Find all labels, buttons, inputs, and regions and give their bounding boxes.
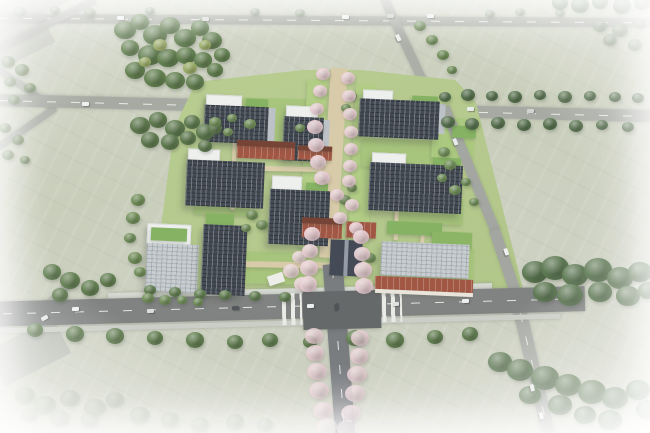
junction-box: [303, 290, 382, 330]
row-main-road-south: [66, 326, 84, 341]
row-main-road-south: [27, 323, 43, 337]
row-main-road-north: [81, 280, 99, 295]
cherry-axis-north: [343, 160, 357, 172]
forest-southeast-upper: [557, 284, 583, 306]
trees-site-interior: [444, 160, 456, 170]
car: [117, 16, 124, 20]
trees-west-edge: [2, 150, 14, 160]
row-north-road: [593, 20, 607, 32]
row-east-road-lower: [543, 118, 557, 130]
trees-faded-southwest: [161, 412, 179, 427]
trees-west-edge: [1, 56, 15, 68]
row-east-road-lower: [517, 119, 531, 131]
cherry-bottom-fade: [317, 418, 337, 433]
trees-west-edge: [15, 64, 29, 76]
trees-faded-southwest: [257, 418, 273, 432]
cherry-axis-north: [341, 72, 355, 84]
grove-west: [161, 134, 179, 149]
park-northwest: [144, 69, 166, 88]
forest-southeast-lower: [602, 387, 628, 409]
trees-site-interior: [414, 21, 426, 31]
row-east-road-upper: [486, 91, 498, 101]
row-main-road-north: [52, 288, 68, 302]
park-northwest: [121, 40, 139, 55]
cherry-gate-plaza: [283, 264, 299, 278]
forest-southeast-upper: [638, 282, 650, 299]
row-north-road: [14, 7, 26, 17]
row-east-road-lower: [622, 122, 634, 132]
trees-site-interior: [438, 147, 450, 157]
trees-west-edge: [4, 77, 16, 87]
trees-site-interior: [124, 233, 136, 243]
car: [387, 14, 394, 18]
trees-site-interior: [159, 295, 171, 305]
zebra-crossing: [382, 290, 403, 323]
cherry-axis-north: [345, 199, 359, 211]
park-accents: [199, 40, 211, 50]
cherry-axis-north: [310, 103, 324, 115]
trees-faded-southwest: [60, 390, 80, 407]
car: [391, 302, 398, 306]
row-main-road-south: [106, 328, 124, 343]
forest-southeast-upper: [616, 286, 640, 306]
cherry-axis-south: [354, 247, 370, 261]
grove-west: [149, 112, 167, 127]
cherry-below-crossing: [345, 385, 365, 402]
trees-site-interior: [209, 117, 221, 127]
forest-southeast-lower: [507, 359, 533, 381]
trees-faded-southwest: [50, 410, 70, 427]
park-northwest: [214, 48, 230, 62]
row-main-road-south: [462, 327, 478, 341]
car: [526, 109, 533, 113]
trees-site-interior: [131, 194, 145, 206]
cherry-below-crossing: [341, 405, 361, 422]
cherry-axis-north: [307, 120, 323, 134]
cherry-axis-north: [342, 175, 356, 187]
row-east-road-upper: [461, 89, 475, 101]
cherry-below-crossing: [305, 328, 323, 343]
car: [71, 307, 78, 311]
cherry-axis-south: [299, 276, 317, 291]
cherry-below-crossing: [347, 366, 367, 383]
tower-center-west-facade: [185, 159, 265, 208]
cherry-below-crossing: [313, 402, 333, 419]
trees-site-interior: [426, 35, 438, 45]
row-east-road-upper: [439, 92, 451, 102]
trees-faded-southwest: [130, 407, 150, 424]
forest-southeast-upper: [533, 282, 557, 302]
park-northwest: [176, 47, 196, 64]
car: [231, 306, 238, 310]
car: [427, 14, 434, 18]
park-accents: [153, 39, 167, 51]
trees-site-interior: [256, 220, 268, 230]
forest-southeast-lower: [598, 410, 622, 430]
grove-west: [141, 132, 159, 147]
cherry-below-crossing: [307, 363, 327, 380]
row-east-road-upper: [609, 92, 621, 102]
park-northwest: [165, 72, 185, 89]
row-east-road-upper: [508, 91, 522, 103]
car: [202, 17, 209, 21]
car: [466, 107, 473, 111]
tower-north-1-side: [267, 108, 275, 141]
trees-site-interior: [244, 119, 256, 129]
row-main-road-south: [427, 330, 443, 344]
cherry-axis-north: [343, 108, 357, 120]
row-east-road-upper: [558, 91, 572, 103]
row-east-road-upper: [584, 91, 596, 101]
row-main-road-south: [147, 331, 163, 345]
car: [342, 15, 349, 19]
cherry-below-crossing: [309, 382, 329, 399]
grove-west: [198, 140, 212, 152]
cherry-axis-north: [308, 138, 324, 152]
cherry-axis-north: [313, 85, 327, 97]
trees-west-edge: [24, 83, 36, 93]
cherry-below-crossing: [351, 330, 369, 345]
trees-site-interior: [142, 293, 154, 303]
car: [335, 303, 339, 310]
tower-southwest-green: [151, 227, 188, 242]
park-northwest: [207, 63, 223, 77]
cherry-below-crossing: [306, 345, 324, 360]
cherry-axis-north: [344, 143, 358, 155]
trees-faded-southwest: [191, 417, 209, 432]
cherry-axis-north: [333, 212, 347, 224]
trees-faded-southwest: [81, 412, 99, 427]
forest-southeast-lower: [626, 380, 650, 400]
trees-faded-southwest: [226, 414, 244, 429]
trees-site-interior: [246, 210, 258, 220]
grove-west: [130, 117, 150, 134]
cherry-axis-north: [330, 189, 344, 201]
forest-southeast-lower: [574, 406, 596, 425]
cherry-axis-north: [344, 126, 358, 138]
cherry-axis-south: [354, 262, 372, 277]
trees-site-interior: [437, 50, 449, 60]
aerial-masterplan-render: Aerial bird's-eye architectural renderin…: [0, 0, 650, 433]
row-main-road-south: [262, 333, 278, 347]
row-main-road-north: [43, 264, 61, 279]
car: [306, 304, 313, 308]
row-east-road-upper: [534, 90, 546, 100]
cherry-axis-north: [314, 171, 330, 185]
forest-southeast-upper: [628, 262, 650, 282]
row-main-road-north: [60, 272, 80, 289]
car: [461, 299, 468, 303]
row-east-road-lower: [569, 120, 583, 132]
cherry-axis-south: [355, 278, 373, 293]
row-main-road-north: [279, 292, 291, 302]
row-main-road-north: [219, 290, 231, 300]
park-accents: [139, 57, 151, 67]
trees-faded-southwest: [22, 408, 38, 422]
row-top-corner: [571, 0, 589, 13]
row-main-road-north: [100, 273, 116, 287]
row-east-road-upper: [632, 93, 644, 103]
trees-site-interior: [128, 252, 142, 264]
cherry-axis-north: [316, 68, 330, 80]
park-northwest: [186, 74, 204, 89]
cherry-axis-south: [304, 227, 320, 241]
trees-west-edge: [12, 135, 24, 145]
row-north-road: [84, 8, 96, 18]
cherry-axis-north: [310, 155, 326, 169]
car: [81, 102, 88, 106]
row-east-road-lower: [596, 120, 608, 130]
cherry-axis-north: [342, 90, 356, 102]
row-north-road: [603, 34, 617, 46]
row-north-road: [628, 39, 642, 51]
tower-north-3-facade: [358, 98, 440, 139]
trees-faded-southwest: [106, 392, 124, 407]
row-east-road-lower: [491, 117, 505, 129]
row-east-road-lower: [465, 118, 479, 130]
row-main-road-north: [249, 291, 261, 301]
row-main-road-south: [227, 335, 243, 349]
trees-site-interior: [449, 185, 461, 195]
forest-southeast-lower: [548, 395, 572, 415]
row-main-road-south: [386, 332, 404, 347]
trees-west-edge: [8, 95, 20, 105]
tower-south-center-facade: [200, 224, 247, 296]
trees-site-interior: [134, 267, 146, 277]
cherry-below-crossing: [350, 348, 368, 363]
trees-faded-southwest: [15, 387, 35, 404]
cherry-axis-south: [353, 230, 369, 244]
grove-west: [180, 131, 196, 145]
row-east-road-lower: [441, 116, 455, 128]
cherry-bottom-fade: [337, 420, 357, 433]
cherry-axis-south: [302, 244, 318, 258]
car: [146, 309, 153, 313]
forest-southeast-upper: [588, 282, 612, 302]
block-southeast-facadeL: [380, 241, 469, 279]
row-main-road-south: [186, 332, 204, 347]
row-top-corner: [613, 0, 631, 14]
trees-site-interior: [126, 212, 140, 224]
row-north-road: [634, 19, 646, 29]
park-accents: [183, 62, 197, 74]
cherry-axis-south: [300, 260, 318, 275]
